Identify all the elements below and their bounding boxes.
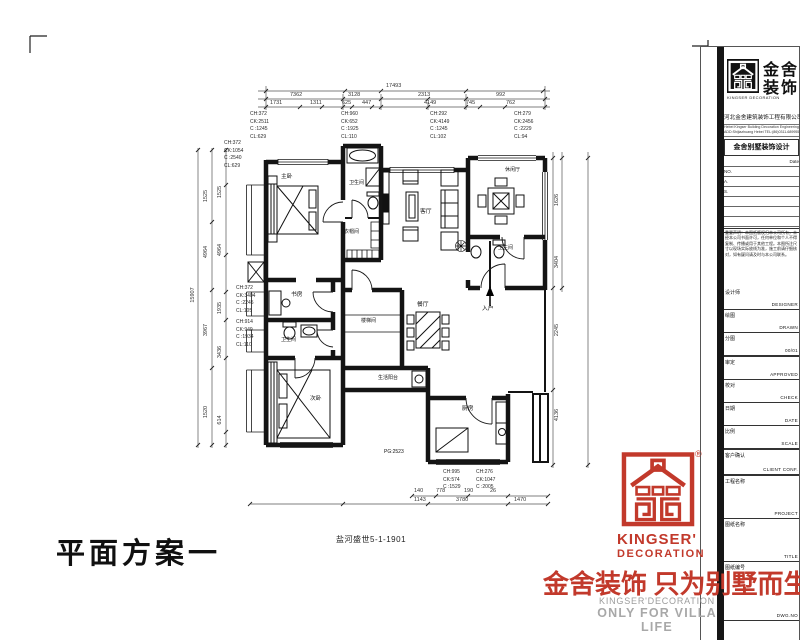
kingser-red-logo-icon xyxy=(621,451,695,534)
callout-line: CL:110 xyxy=(236,342,254,350)
field-label: 比例 xyxy=(725,428,735,435)
callout-line: C :1934 xyxy=(236,334,254,342)
dimension-value: 3404 xyxy=(554,247,560,277)
field-value: PROJECT xyxy=(774,511,798,516)
walls-inner xyxy=(345,218,548,462)
callout-line: CH:279 xyxy=(514,111,533,119)
dimension-value: 17493 xyxy=(386,83,401,89)
brand-en: KINGSER DECORATION xyxy=(727,95,780,100)
callout-line: CL:94 xyxy=(514,134,533,142)
callout-line: C :1245 xyxy=(250,126,269,134)
corner-mark xyxy=(30,36,708,60)
field-row: 校对 CHECK xyxy=(724,380,799,403)
dimension-value: 26 xyxy=(490,488,496,494)
field-row: 图纸名称 TITLE xyxy=(724,519,799,562)
s-label: S. xyxy=(724,187,799,197)
callout-line: CL:102 xyxy=(430,134,449,142)
footer-tagline-en1: KINGSER'DECORATION xyxy=(592,596,722,606)
room-label-bath2: 卫生间 xyxy=(498,244,513,251)
blank-rule xyxy=(724,197,799,207)
field-row: 客户确认 CLIENT CONF. xyxy=(724,450,799,476)
room-label-master: 主卧 xyxy=(281,171,293,180)
callout-line: CH:914 xyxy=(236,319,254,327)
callout-line: C :1245 xyxy=(430,126,449,134)
kingser-logo-icon xyxy=(727,59,759,93)
copyright-notice: 重要声明：本图纸版权归本公司所有，未经本公司书面许可，任何单位和个人不得复制、传… xyxy=(725,230,797,257)
dimension-value: 3128 xyxy=(348,92,360,98)
footer-kingser-text: KINGSER' xyxy=(617,531,697,548)
dimension-value: 1525 xyxy=(217,177,223,207)
drawing-sheet: CH:372CK:2511C :1245CL:629 CH:960CK:652C… xyxy=(0,0,800,640)
dimension-value: 3967 xyxy=(203,315,209,345)
callout-line: CL:629 xyxy=(224,163,243,171)
callout-line: C :2540 xyxy=(224,155,243,163)
callout-line: CK:3404 xyxy=(236,293,255,301)
blank-rule xyxy=(724,207,799,217)
dimension-lines xyxy=(198,86,588,504)
room-label-bath1: 卫生间 xyxy=(349,179,364,186)
callout-line: CH:292 xyxy=(430,111,449,119)
field-row: 绘图 DRAWN xyxy=(724,310,799,333)
room-label-kitchen: 厨房 xyxy=(462,403,474,412)
dimension-value: 4149 xyxy=(424,100,436,106)
furniture xyxy=(248,148,524,452)
date-label: Date xyxy=(724,157,799,167)
dimension-value: 15907 xyxy=(190,280,196,310)
blank-rule xyxy=(724,217,799,227)
window-callout: CH:372CK:2511C :1245CL:629 xyxy=(250,111,269,141)
field-label: 绘图 xyxy=(725,312,735,319)
dimension-value: 614 xyxy=(217,405,223,435)
callout-line: C :2229 xyxy=(514,126,533,134)
dimension-value: 992 xyxy=(496,92,505,98)
dimension-value: 1935 xyxy=(217,293,223,323)
dimension-value: 4964 xyxy=(217,235,223,265)
no-label: NO. xyxy=(724,167,799,177)
room-label-leisure: 休闲厅 xyxy=(505,166,520,173)
dimension-value: 625 xyxy=(342,100,351,106)
field-label: 客户确认 xyxy=(725,452,745,459)
callout-line: CK:1047 xyxy=(476,477,495,485)
dimension-value: 3780 xyxy=(456,497,468,503)
company-name-cn: 河北金舍建筑装饰工程有限公司 xyxy=(724,113,799,121)
dimension-value: 1626 xyxy=(554,185,560,215)
company-contact-en: ADD:Shijiazhuang Hebei TEL:(86)0311-6899… xyxy=(724,130,799,137)
callout-line: CH:995 xyxy=(443,469,461,477)
field-value: DATE xyxy=(785,418,798,423)
dimension-value: 4964 xyxy=(203,237,209,267)
room-label-balcony: 生活阳台 xyxy=(378,374,398,381)
field-value: CLIENT CONF. xyxy=(763,467,798,472)
plan-caption: 盐河盛世5-1-1901 xyxy=(336,534,406,545)
field-label: 校对 xyxy=(725,382,735,389)
room-label-bath3: 卫生间 xyxy=(281,336,296,343)
callout-line: CK:2456 xyxy=(514,119,533,127)
field-row: 比例 SCALE xyxy=(724,426,799,450)
window-callout: CH:372CK:3404C :2245CL:105 xyxy=(236,285,255,315)
callout-line: CK:1054 xyxy=(224,148,243,156)
company-name-en: Hebei Kingser Building Decoration Engine… xyxy=(724,124,799,129)
callout-line: C :2245 xyxy=(236,300,255,308)
window-callout: CH:372CK:1054C :2540CL:629 xyxy=(224,140,243,170)
dimension-value: 1520 xyxy=(203,397,209,427)
dimension-value: 447 xyxy=(362,100,371,106)
dimension-value: 778 xyxy=(436,488,445,494)
field-value: APPROVED xyxy=(770,372,798,377)
room-label-bedroom2: 次卧 xyxy=(310,393,322,402)
callout-line: CL:629 xyxy=(250,134,269,142)
dimension-value: 140 xyxy=(414,488,423,494)
field-row: 日期 DATE xyxy=(724,403,799,426)
field-label: 审定 xyxy=(725,359,735,366)
callout-line: CK:949 xyxy=(236,327,254,335)
callout-line: CK:2511 xyxy=(250,119,269,127)
callout-line: CL:110 xyxy=(341,134,359,142)
dimension-value: 1311 xyxy=(310,100,322,106)
registered-mark: ® xyxy=(695,449,702,459)
callout-line: CL:105 xyxy=(236,308,255,316)
window-callout: CH:995CK:574C :1529 xyxy=(443,469,461,492)
dimension-value: 1525 xyxy=(203,181,209,211)
field-row: 设计师 DESIGNER xyxy=(724,287,799,310)
dimension-value: 762 xyxy=(506,100,515,106)
room-label-living: 客厅 xyxy=(420,206,432,215)
dept-title: 金舍别墅装饰设计 xyxy=(724,139,799,156)
window-callout: CH:914CK:949C :1934CL:110 xyxy=(236,319,254,349)
dimension-value: 1143 xyxy=(414,497,426,503)
callout-line: CK:652 xyxy=(341,119,359,127)
dimension-value: 2313 xyxy=(418,92,430,98)
field-value: SCALE xyxy=(781,441,798,446)
titleblock-bar xyxy=(717,47,724,640)
window-callout: CH:960CK:652C :1925CL:110 xyxy=(341,111,359,141)
field-value: DESIGNER xyxy=(772,302,798,307)
footer-decoration-text: DECORATION xyxy=(617,548,697,560)
field-row: 审定 APPROVED xyxy=(724,357,799,380)
callout-line: C :1925 xyxy=(341,126,359,134)
field-label: 分图 xyxy=(725,335,735,342)
field-value: DWG.NO xyxy=(777,613,798,618)
field-row: 分图 00/01 xyxy=(724,333,799,357)
dimension-value: 745 xyxy=(466,100,475,106)
field-value: TITLE xyxy=(784,554,798,559)
field-row: 工程名称 PROJECT xyxy=(724,476,799,519)
bay-window-tag: PG:2523 xyxy=(384,449,404,455)
dimension-value: 190 xyxy=(464,488,473,494)
callout-line: CH:960 xyxy=(341,111,359,119)
field-label: 日期 xyxy=(725,405,735,412)
title-block: 金舍 装饰 KINGSER DECORATION 河北金舍建筑装饰工程有限公司 … xyxy=(700,46,800,640)
window-callout: CH:292CK:4149C :1245CL:102 xyxy=(430,111,449,141)
field-label: 设计师 xyxy=(725,289,740,296)
scheme-title: 平面方案一 xyxy=(56,530,221,572)
dimension-value: 1731 xyxy=(270,100,282,106)
footer-tagline-en2: ONLY FOR VILLA LIFE xyxy=(580,606,734,634)
callout-line: CH:276 xyxy=(476,469,495,477)
callout-line: C :1529 xyxy=(443,484,461,492)
room-label-stair: 楼梯间 xyxy=(361,317,376,324)
field-value: 00/01 xyxy=(785,348,798,353)
dimension-value: 3436 xyxy=(217,337,223,367)
callout-line: CH:372 xyxy=(236,285,255,293)
dimension-value: 7362 xyxy=(290,92,302,98)
field-value: CHECK xyxy=(780,395,798,400)
dimension-value: 2245 xyxy=(554,315,560,345)
room-label-entry: 入户 xyxy=(482,303,494,312)
room-label-closet: 衣帽间 xyxy=(344,228,359,235)
window-callout: CH:279CK:2456C :2229CL:94 xyxy=(514,111,533,141)
field-label: 工程名称 xyxy=(725,478,745,485)
field-value: DRAWN xyxy=(779,325,798,330)
titleblock-main: 金舍 装饰 KINGSER DECORATION 河北金舍建筑装饰工程有限公司 … xyxy=(724,47,799,640)
room-label-study: 书房 xyxy=(291,289,303,298)
dimension-value: 4136 xyxy=(554,400,560,430)
callout-line: CK:4149 xyxy=(430,119,449,127)
callout-line: CH:372 xyxy=(250,111,269,119)
field-label: 图纸名称 xyxy=(725,521,745,528)
a-label: A. xyxy=(724,177,799,187)
callout-line: CK:574 xyxy=(443,477,461,485)
room-label-dining: 餐厅 xyxy=(417,299,429,308)
callout-line: CH:372 xyxy=(224,140,243,148)
dimension-value: 1470 xyxy=(514,497,526,503)
